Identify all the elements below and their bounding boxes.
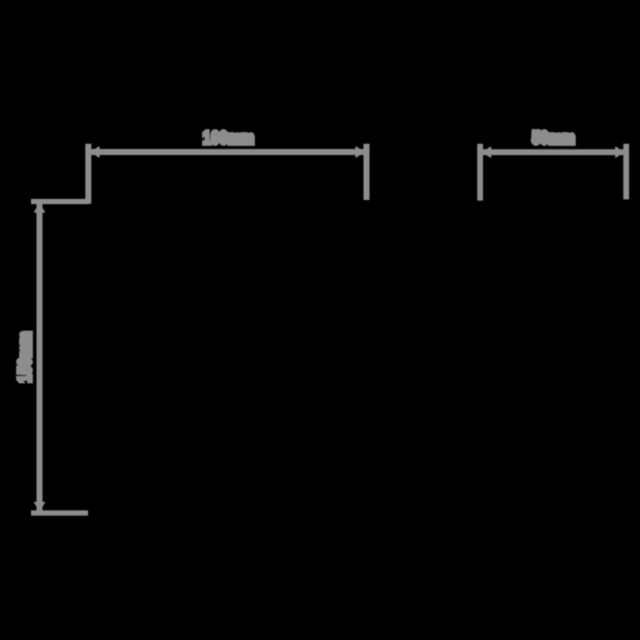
svg-text:100mm: 100mm bbox=[203, 127, 255, 148]
svg-text:50mm: 50mm bbox=[532, 127, 575, 148]
svg-text:150mm: 150mm bbox=[14, 331, 35, 383]
